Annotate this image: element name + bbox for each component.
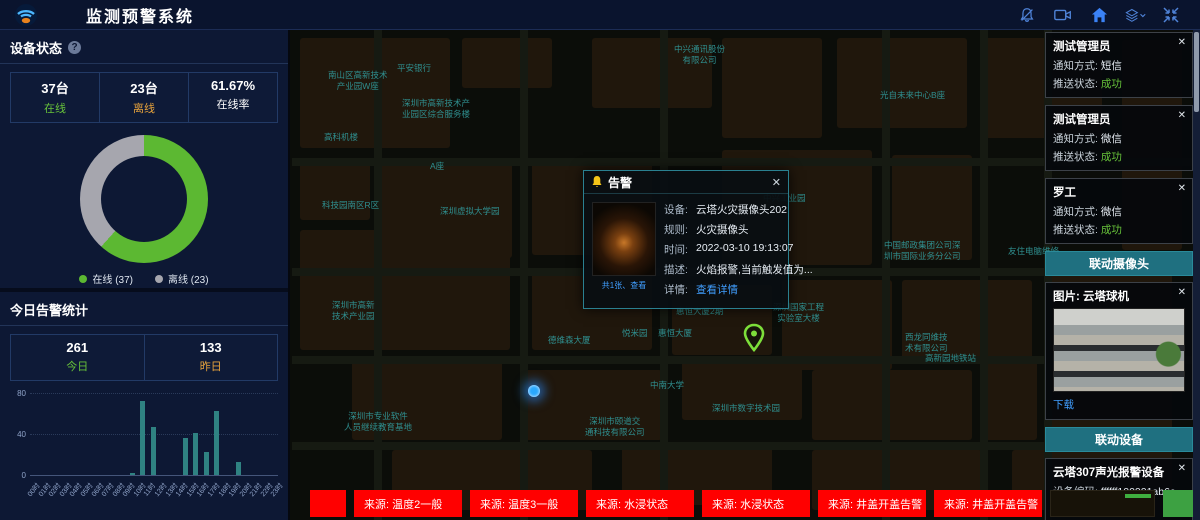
- map-label: 中南大学: [650, 380, 684, 391]
- device-stat-value-0: 37台: [11, 78, 99, 97]
- map-label: 深圳市高新技术产 业园区综合服务楼: [402, 98, 470, 119]
- device-stat-value-2: 61.67%: [189, 78, 277, 93]
- today-alarm-title-text: 今日告警统计: [10, 300, 88, 319]
- device-status-stats-row: 37台在线23台离线61.67%在线率: [10, 72, 278, 123]
- map-road: [882, 30, 890, 520]
- donut-legend-item-1: 离线 (23): [155, 271, 209, 286]
- alert-image-thumbnail[interactable]: [1050, 490, 1155, 517]
- alarm-row-value: 2022-03-10 19:13:07: [696, 242, 794, 257]
- alert-source-tile-0[interactable]: [310, 490, 346, 517]
- bar-15时: [193, 433, 198, 475]
- today-alarm-section-title: 今日告警统计: [0, 292, 288, 326]
- download-link[interactable]: 下载: [1053, 397, 1074, 412]
- right-scrollbar-track[interactable]: [1193, 30, 1200, 520]
- close-icon[interactable]: ✕: [1178, 110, 1186, 121]
- alert-source-tile-2[interactable]: 来源: 温度3一般: [470, 490, 578, 517]
- bottom-alert-ticker: 来源: 温度2一般来源: 温度3一般来源: 水浸状态来源: 水浸状态来源: 井盖…: [310, 490, 1200, 517]
- legend-dot-icon: [79, 275, 87, 283]
- map-label: 深圳虚拟大学园: [440, 206, 500, 217]
- alarm-row-value: 火焰报警,当前触发值为...: [696, 262, 813, 277]
- notification-card-1-row-0: 通知方式: 微信: [1053, 131, 1185, 146]
- x-axis-line: [30, 475, 278, 476]
- notification-card-0-row-1: 推送状态: 成功: [1053, 76, 1185, 91]
- today-stat-value-0: 261: [11, 340, 144, 355]
- device-stat-cell-0: 37台在线: [11, 73, 99, 122]
- blue-location-marker[interactable]: [528, 385, 540, 397]
- notification-card-1-title: 测试管理员: [1053, 111, 1185, 127]
- map-label: 平安银行: [397, 63, 431, 74]
- alarm-popup-header: 告警 ✕: [584, 171, 788, 194]
- map-block: [722, 38, 822, 138]
- device-stat-value-1: 23台: [100, 78, 188, 97]
- alarm-snapshot-caption[interactable]: 共1张、查看: [592, 280, 656, 291]
- alarm-row-label: 详情:: [664, 282, 696, 297]
- alarm-popup-title: 告警: [608, 174, 632, 191]
- layers-icon[interactable]: [1124, 5, 1146, 25]
- y-tick-80: 80: [8, 389, 26, 398]
- today-stat-cell-1: 133昨日: [144, 335, 278, 380]
- today-stat-label-0: 今日: [11, 358, 144, 374]
- alarm-popup-close-icon[interactable]: ✕: [772, 176, 781, 189]
- map-label: 深圳市高新 技术产业园: [332, 300, 375, 321]
- bar-16时: [204, 452, 209, 475]
- map-block: [982, 360, 1037, 440]
- alarm-row-1: 规则:火灾摄像头: [664, 222, 813, 237]
- map-road: [980, 30, 988, 520]
- camera-snapshot-image[interactable]: [1053, 308, 1185, 392]
- app-logo-icon: [14, 3, 38, 27]
- camera-card-title: 图片: 云塔球机: [1053, 288, 1185, 304]
- notification-card-2-value-0: 微信: [1101, 206, 1122, 218]
- bar-19时: [236, 462, 241, 475]
- map-road: [520, 30, 528, 520]
- bell-muted-icon[interactable]: [1016, 5, 1038, 25]
- map-label: 深圳市颐道交 通科技有限公司: [585, 416, 645, 437]
- grid-line-80: [30, 393, 278, 394]
- map-block: [837, 38, 967, 128]
- page-title: 监测预警系统: [86, 3, 194, 27]
- bar-14时: [183, 438, 188, 475]
- map-label: 深圳市数字技术园: [712, 403, 780, 414]
- map-label: 惠恒大厦: [658, 328, 692, 339]
- y-tick-40: 40: [8, 430, 26, 439]
- map-label: 西龙同维技 术有限公司: [905, 332, 948, 353]
- hourly-alarm-bar-chart: 8040000时01时02时03时04时05时06时07时08时09时10时11…: [4, 387, 284, 517]
- bar-11时: [151, 427, 156, 475]
- today-stat-label-1: 昨日: [145, 358, 278, 374]
- donut-legend: 在线 (37)离线 (23): [79, 271, 208, 286]
- notification-card-2-row-1: 推送状态: 成功: [1053, 222, 1185, 237]
- notification-card-1-value-1: 成功: [1101, 151, 1122, 163]
- map-label: 深圳市专业软件 人员继续教育基地: [344, 411, 412, 432]
- bar-09时: [130, 473, 135, 475]
- collapse-icon[interactable]: [1160, 5, 1182, 25]
- today-alarm-stats-row: 261今日133昨日: [10, 334, 278, 381]
- map-block: [812, 370, 972, 440]
- device-stat-label-1: 离线: [100, 100, 188, 116]
- notification-card-0-value-1: 成功: [1101, 78, 1122, 90]
- donut-hole: [101, 156, 187, 242]
- left-statistics-panel: 设备状态 ? 37台在线23台离线61.67%在线率 在线 (37)离线 (23…: [0, 30, 290, 520]
- device-status-section-title: 设备状态 ?: [0, 30, 288, 64]
- today-stat-cell-0: 261今日: [11, 335, 144, 380]
- map-label: 高科机楼: [324, 132, 358, 143]
- alert-source-tile-4[interactable]: 来源: 水浸状态: [702, 490, 810, 517]
- alarm-row-4: 详情:查看详情: [664, 282, 813, 297]
- alarm-row-3: 描述:火焰报警,当前触发值为...: [664, 262, 813, 277]
- notification-card-2-value-1: 成功: [1101, 224, 1122, 236]
- right-scrollbar-thumb[interactable]: [1194, 32, 1199, 112]
- device-stat-label-2: 在线率: [189, 96, 277, 112]
- alarm-row-label: 设备:: [664, 202, 696, 217]
- close-icon[interactable]: ✕: [1178, 37, 1186, 48]
- alarm-row-0: 设备:云塔火灾摄像头202: [664, 202, 813, 217]
- alarm-row-label: 描述:: [664, 262, 696, 277]
- help-icon[interactable]: ?: [68, 41, 81, 54]
- bar-17时: [214, 411, 219, 475]
- map-label: 悦米园: [622, 328, 648, 339]
- map-block: [300, 230, 510, 350]
- notification-card-2: ✕罗工通知方式: 微信推送状态: 成功: [1045, 178, 1193, 244]
- today-stat-value-1: 133: [145, 340, 278, 355]
- close-icon[interactable]: ✕: [1178, 183, 1186, 194]
- monitoring-dashboard: 监测预警系统 中兴通讯股份 有限公司平安银行南山区高新技术 产业园W座深圳市高新…: [0, 0, 1200, 520]
- map-label: 高新园地铁站: [925, 353, 976, 364]
- donut-legend-label-1: 离线 (23): [168, 271, 209, 286]
- video-camera-icon[interactable]: [1052, 5, 1074, 25]
- y-tick-0: 0: [8, 471, 26, 480]
- map-label: 中兴通讯股份 有限公司: [674, 44, 725, 65]
- alarm-row-label: 规则:: [664, 222, 696, 237]
- legend-dot-icon: [155, 275, 163, 283]
- map-label: A座: [430, 161, 444, 172]
- home-icon[interactable]: [1088, 5, 1110, 25]
- map-label: 中国邮政集团公司深 圳市国际业务分公司: [884, 240, 961, 261]
- top-header-bar: 监测预警系统: [0, 0, 1200, 30]
- device-status-donut-wrap: 在线 (37)离线 (23): [0, 129, 288, 288]
- alarm-popup-body: 共1张、查看 设备:云塔火灾摄像头202规则:火灾摄像头时间:2022-03-1…: [584, 194, 788, 308]
- device-card-0-title: 云塔307声光报警设备: [1053, 464, 1185, 480]
- device-stat-cell-1: 23台离线: [99, 73, 188, 122]
- alert-source-tile-1[interactable]: 来源: 温度2一般: [354, 490, 462, 517]
- map-block: [300, 160, 370, 220]
- alarm-row-value: 火灾摄像头: [696, 222, 749, 237]
- header-icon-group: [1016, 5, 1182, 25]
- device-stat-cell-2: 61.67%在线率: [188, 73, 277, 122]
- notification-card-2-row-0: 通知方式: 微信: [1053, 204, 1185, 219]
- notification-card-1-value-0: 微信: [1101, 133, 1122, 145]
- close-icon[interactable]: ✕: [1178, 287, 1186, 298]
- map-label: 光自未来中心B座: [880, 90, 945, 101]
- alert-source-tile-5[interactable]: 来源: 井盖开盖告警: [818, 490, 926, 517]
- alert-source-tile-6[interactable]: 来源: 井盖开盖告警: [934, 490, 1042, 517]
- linked-camera-section-header: 联动摄像头: [1045, 251, 1193, 276]
- alarm-row-value: 云塔火灾摄像头202: [696, 202, 787, 217]
- donut-legend-item-0: 在线 (37): [79, 271, 133, 286]
- notification-cards: ✕测试管理员通知方式: 短信推送状态: 成功✕测试管理员通知方式: 微信推送状态…: [1045, 32, 1193, 244]
- notification-card-0: ✕测试管理员通知方式: 短信推送状态: 成功: [1045, 32, 1193, 98]
- map-road: [374, 30, 382, 520]
- donut-legend-label-0: 在线 (37): [92, 271, 133, 286]
- notification-card-0-row-0: 通知方式: 短信: [1053, 58, 1185, 73]
- map-label: 德维森大厦: [548, 335, 591, 346]
- linked-camera-card: ✕ 图片: 云塔球机 下载: [1045, 282, 1193, 420]
- notification-card-0-value-0: 短信: [1101, 60, 1122, 72]
- device-stat-label-0: 在线: [11, 100, 99, 116]
- alarm-snapshot-image[interactable]: [592, 202, 656, 276]
- map-label: 科技园南区R区: [322, 200, 379, 211]
- alarm-snapshot-column: 共1张、查看: [592, 202, 656, 302]
- alarm-bell-icon: [591, 175, 603, 189]
- map-label: 南山区高新技术 产业园W座: [328, 70, 388, 91]
- device-status-title-text: 设备状态: [10, 38, 62, 57]
- alarm-popup: 告警 ✕ 共1张、查看 设备:云塔火灾摄像头202规则:火灾摄像头时间:2022…: [583, 170, 789, 309]
- notification-card-2-title: 罗工: [1053, 184, 1185, 200]
- alarm-row-2: 时间:2022-03-10 19:13:07: [664, 242, 813, 257]
- notification-card-0-title: 测试管理员: [1053, 38, 1185, 54]
- alarm-detail-rows: 设备:云塔火灾摄像头202规则:火灾摄像头时间:2022-03-10 19:13…: [664, 202, 813, 302]
- close-icon[interactable]: ✕: [1178, 463, 1186, 474]
- green-pin-marker[interactable]: [742, 323, 766, 358]
- notification-card-1: ✕测试管理员通知方式: 微信推送状态: 成功: [1045, 105, 1193, 171]
- device-status-donut-chart: [80, 135, 208, 263]
- bar-10时: [140, 401, 145, 475]
- map-block: [462, 38, 552, 88]
- linked-device-section-header: 联动设备: [1045, 427, 1193, 452]
- view-detail-link[interactable]: 查看详情: [696, 282, 738, 297]
- alarm-row-label: 时间:: [664, 242, 696, 257]
- alert-source-tile-3[interactable]: 来源: 水浸状态: [586, 490, 694, 517]
- right-linkage-panel: ✕测试管理员通知方式: 短信推送状态: 成功✕测试管理员通知方式: 微信推送状态…: [1045, 32, 1193, 520]
- notification-card-1-row-1: 推送状态: 成功: [1053, 149, 1185, 164]
